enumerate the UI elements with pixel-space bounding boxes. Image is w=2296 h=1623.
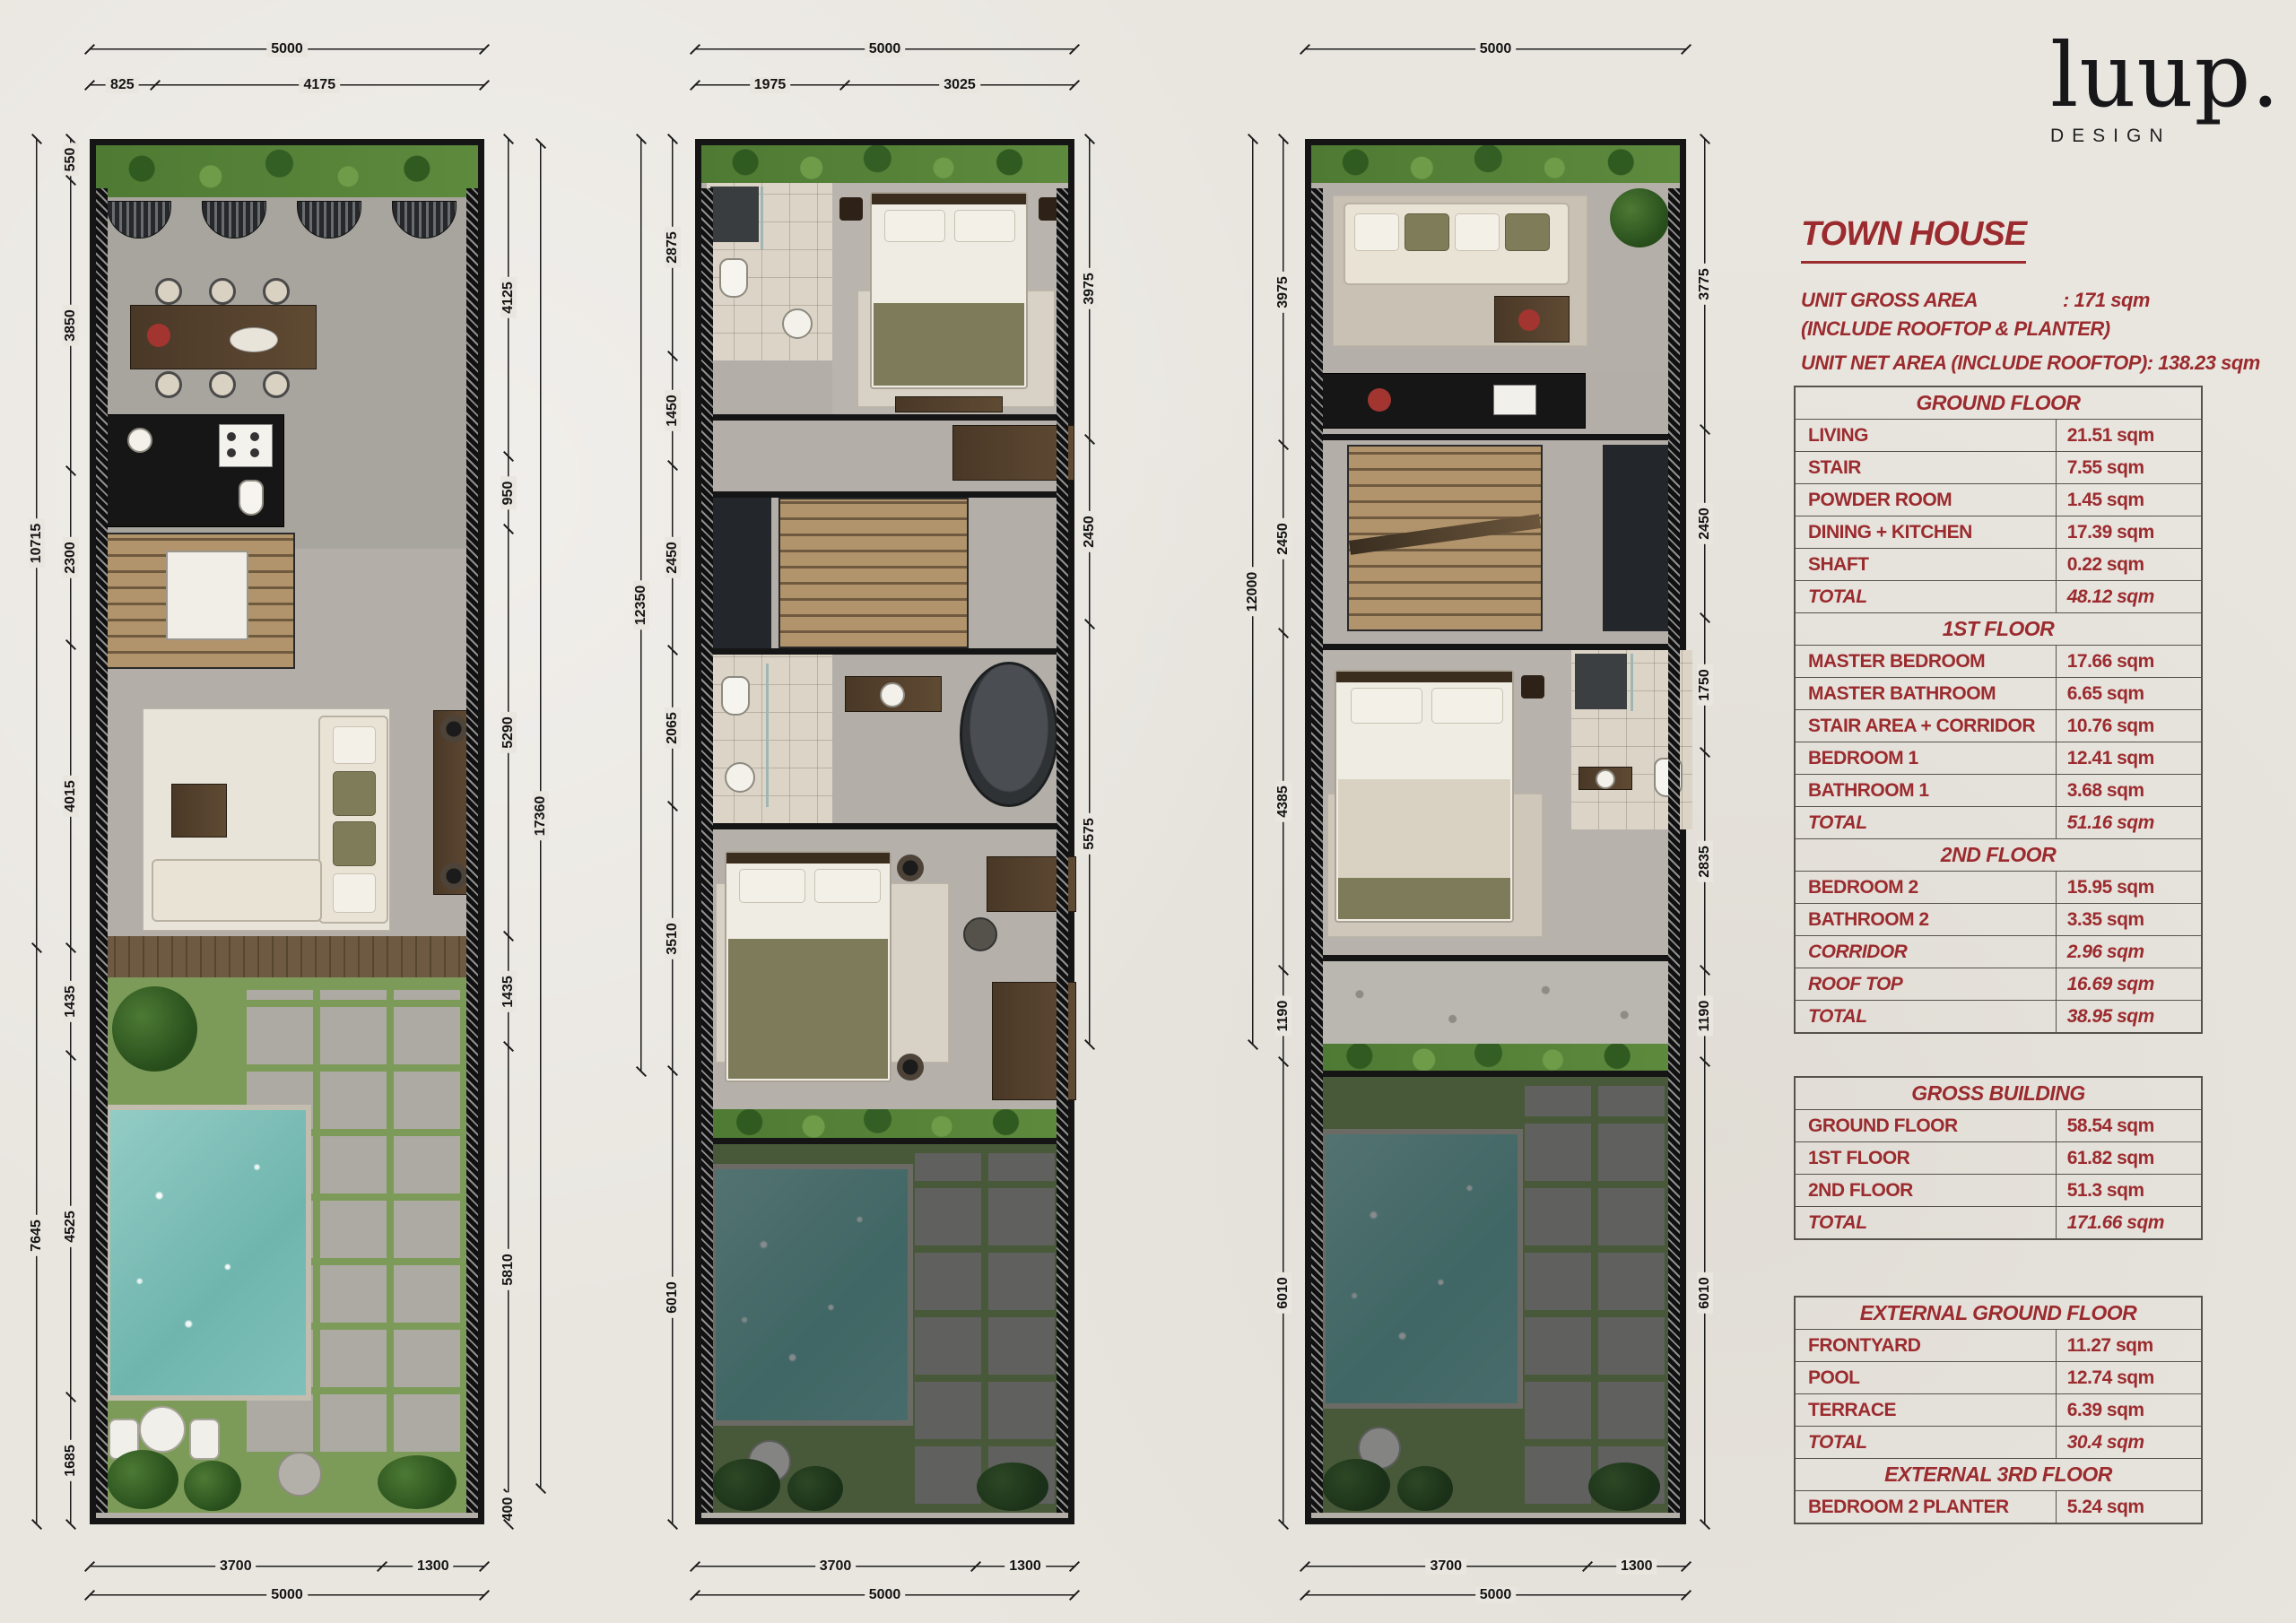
dimension-label: 4525 (63, 1206, 79, 1247)
table-row: ROOF TOP16.69 sqm (1796, 968, 2201, 1000)
dimension-label: 1435 (500, 971, 517, 1012)
bathroom-wc (707, 655, 832, 823)
dimension-segment: 4175 (155, 75, 484, 95)
dimension-segment: 1685 (61, 1397, 81, 1524)
table-row: BATHROOM 13.68 sqm (1796, 774, 2201, 806)
dimension-segment: 12350 (631, 139, 651, 1072)
dimension-segment: 1450 (663, 356, 683, 465)
table-row: CORRIDOR2.96 sqm (1796, 935, 2201, 968)
dimension-segment: 5000 (90, 1585, 484, 1605)
table-section-header: GROUND FLOOR (1796, 387, 2201, 419)
dimension-segment: 5810 (499, 1046, 518, 1493)
dimension-label: 400 (500, 1493, 517, 1526)
table-row: DINING + KITCHEN17.39 sqm (1796, 516, 2201, 548)
table-row: TOTAL171.66 sqm (1796, 1206, 2201, 1238)
dimension-label: 5000 (266, 1587, 308, 1603)
dimension-segment: 2450 (1080, 439, 1100, 624)
dimension-label: 3975 (1275, 272, 1291, 313)
dimension-label: 2875 (665, 227, 681, 268)
dining-chair (263, 371, 290, 398)
dimension-segment: 5000 (695, 39, 1074, 59)
interior-wall (701, 414, 1068, 421)
dimension-segment: 1190 (1274, 970, 1293, 1062)
table-row: POWDER ROOM1.45 sqm (1796, 483, 2201, 516)
interior-wall (701, 491, 1068, 498)
dim-top-overall: 5000 (90, 39, 484, 59)
kitchen-counter (103, 414, 284, 527)
desk-chair (963, 917, 997, 951)
dimension-segment: 2450 (1274, 445, 1293, 633)
dimension-label: 2065 (665, 707, 681, 749)
coffee-table (1494, 296, 1570, 343)
table-section-header: EXTERNAL 3RD FLOOR (1796, 1458, 2201, 1490)
dimension-label: 6010 (1275, 1272, 1291, 1314)
dining-chair (155, 371, 182, 398)
dim-left-outer: 12350 (631, 139, 651, 1072)
balcony-planter (707, 1109, 1063, 1138)
dimension-label: 2450 (1082, 511, 1098, 552)
speaker (440, 716, 467, 742)
dimension-label: 3850 (63, 305, 79, 346)
dimension-segment: 6010 (1695, 1062, 1715, 1524)
dim-top-segments: 19753025 (695, 75, 1074, 95)
dimension-label: 6010 (1697, 1272, 1713, 1314)
dim-top-overall: 5000 (1305, 39, 1686, 59)
dimension-segment: 4125 (499, 139, 518, 456)
interior-wall (701, 823, 1068, 829)
dimension-segment: 2300 (61, 471, 81, 645)
dimension-segment: 2065 (663, 650, 683, 806)
dimension-segment: 3700 (90, 1557, 382, 1576)
dimension-label: 10715 (29, 519, 45, 568)
table-row: BEDROOM 2 PLANTER5.24 sqm (1796, 1490, 2201, 1523)
interior-wall (1311, 434, 1680, 440)
dimension-label: 5290 (500, 712, 517, 753)
dim-right-inner: 397524505575 (1080, 139, 1100, 1045)
planter-strip (1311, 145, 1680, 183)
dimension-label: 1190 (1697, 996, 1713, 1037)
dim-left-inner: 550385023004015143545251685 (61, 139, 81, 1524)
dimension-segment: 550 (61, 139, 81, 180)
dimension-label: 12350 (633, 581, 649, 630)
swimming-pool (110, 1110, 306, 1395)
dimension-label: 17360 (533, 792, 549, 841)
dimension-segment: 2450 (663, 465, 683, 650)
shaft (1603, 445, 1674, 631)
dim-right-outer: 17360 (531, 143, 551, 1488)
unit-net-area-line: UNIT NET AREA (INCLUDE ROOFTOP): 138.23 … (1801, 352, 2260, 375)
dimension-label: 3700 (215, 1558, 257, 1575)
dimension-segment: 7645 (27, 948, 47, 1524)
dimension-segment: 1435 (499, 936, 518, 1046)
table-row: STAIR AREA + CORRIDOR10.76 sqm (1796, 709, 2201, 742)
dimension-segment: 3510 (663, 806, 683, 1071)
interior-wall (1311, 1071, 1680, 1077)
dimension-segment: 6010 (663, 1071, 683, 1524)
staircase (778, 498, 969, 648)
dimension-label: 2450 (665, 537, 681, 578)
garden-below-view (1317, 1077, 1674, 1513)
table-row: FRONTYARD11.27 sqm (1796, 1329, 2201, 1361)
interior-wall (701, 648, 1068, 655)
staircase (1347, 445, 1543, 631)
interior-wall (1311, 955, 1680, 961)
planter-strip (701, 145, 1068, 183)
dimension-segment: 6010 (1274, 1062, 1293, 1524)
living-sofa (318, 716, 388, 924)
dimension-label: 2835 (1697, 841, 1713, 882)
dim-left-outer: 107157645 (27, 139, 47, 1524)
dim-left-inner: 39752450438511906010 (1274, 139, 1293, 1524)
townhouse-plan-sheet: 5000 8254175 107157645 55038502300401514… (0, 0, 2296, 1623)
table-row: 1ST FLOOR61.82 sqm (1796, 1141, 2201, 1174)
dim-left-inner: 287514502450206535106010 (663, 139, 683, 1524)
table-row: LIVING21.51 sqm (1796, 419, 2201, 451)
table-section-header: 1ST FLOOR (1796, 612, 2201, 645)
dimension-label: 4385 (1275, 781, 1291, 822)
dimension-segment: 1300 (1587, 1557, 1687, 1576)
table-section-header: EXTERNAL GROUND FLOOR (1796, 1298, 2201, 1329)
dimension-segment: 2875 (663, 139, 683, 356)
dimension-segment: 10715 (27, 139, 47, 948)
dimension-label: 1450 (665, 390, 681, 431)
lower-floor-shade (1317, 1077, 1674, 1513)
dimension-segment: 3975 (1274, 139, 1293, 445)
stair-landing (166, 551, 248, 640)
dining-chair (209, 278, 236, 305)
gross-building-table: GROSS BUILDINGGROUND FLOOR58.54 sqm1ST F… (1794, 1076, 2203, 1240)
unit-gross-area-label: UNIT GROSS AREA (1801, 289, 1978, 312)
indoor-plant (1610, 188, 1669, 247)
dimension-label: 1975 (750, 77, 791, 93)
external-area-table: EXTERNAL GROUND FLOORFRONTYARD11.27 sqmP… (1794, 1296, 2203, 1524)
table-row: TOTAL30.4 sqm (1796, 1426, 2201, 1458)
logo-subtitle: DESIGN (2050, 126, 2280, 147)
floor-area-table: GROUND FLOORLIVING21.51 sqmSTAIR7.55 sqm… (1794, 386, 2203, 1034)
bedroom-2 (1317, 650, 1674, 955)
wall-hatch (96, 188, 108, 1513)
table-row: TOTAL51.16 sqm (1796, 806, 2201, 838)
wall-hatch (1668, 188, 1680, 1513)
dimension-segment: 4385 (1274, 633, 1293, 970)
pantry-counter (1317, 373, 1586, 429)
lower-floor-shade (707, 1144, 1063, 1513)
dimension-label: 5575 (1082, 814, 1098, 855)
dining-table (130, 305, 317, 369)
logo-wordmark: luup. (2050, 32, 2280, 120)
dimension-segment: 1300 (382, 1557, 484, 1576)
dining-chair (263, 278, 290, 305)
dimension-label: 6010 (665, 1277, 681, 1318)
dimension-label: 3975 (1082, 268, 1098, 309)
table-row: POOL12.74 sqm (1796, 1361, 2201, 1393)
dimension-segment: 3775 (1695, 139, 1715, 430)
wall-hatch (466, 188, 478, 1513)
dim-right-inner: 4125950529014355810400 (499, 139, 518, 1524)
garden-shrub (107, 1450, 178, 1509)
unit-gross-area-value: : 171 sqm (2063, 289, 2150, 312)
dimension-segment: 400 (499, 1494, 518, 1524)
dimension-label: 4015 (63, 776, 79, 817)
wall-hatch (1057, 188, 1068, 1513)
dimension-segment: 3025 (845, 75, 1074, 95)
dim-bottom-segments: 37001300 (1305, 1557, 1686, 1576)
dimension-label: 2450 (1697, 503, 1713, 544)
dimension-segment: 1190 (1695, 970, 1715, 1062)
dimension-segment: 12000 (1243, 139, 1263, 1045)
outdoor-chair (189, 1419, 220, 1460)
dimension-label: 3510 (665, 918, 681, 959)
dim-top-segments: 8254175 (90, 75, 484, 95)
stone-basin (277, 1452, 322, 1497)
powder-room-toilet (239, 480, 264, 516)
bath-vanity (845, 676, 942, 712)
bed-bench (895, 396, 1003, 412)
dimension-segment: 5000 (695, 1585, 1074, 1605)
dim-bottom-overall: 5000 (90, 1585, 484, 1605)
wall-hatch (701, 188, 713, 1513)
dimension-label: 1300 (413, 1558, 454, 1575)
table-row: TOTAL48.12 sqm (1796, 580, 2201, 612)
interior-wall (701, 1138, 1068, 1144)
dimension-segment: 3975 (1080, 139, 1100, 439)
terrace-deck (101, 936, 473, 977)
dimension-label: 5000 (266, 41, 308, 57)
garden-tree (112, 986, 197, 1072)
ground-floor-plan (90, 139, 484, 1524)
page-title-wrap: TOWN HOUSE (1801, 215, 2026, 264)
garden-shrub (184, 1461, 241, 1511)
garden (101, 977, 473, 1513)
table-row: GROUND FLOOR58.54 sqm (1796, 1109, 2201, 1141)
dimension-segment: 5290 (499, 529, 518, 936)
table-row: MASTER BATHROOM6.65 sqm (1796, 677, 2201, 709)
dimension-segment: 950 (499, 456, 518, 530)
dimension-label: 5000 (865, 41, 906, 57)
dim-bottom-overall: 5000 (1305, 1585, 1686, 1605)
dimension-label: 4125 (500, 277, 517, 318)
dimension-label: 12000 (1245, 568, 1261, 617)
dimension-label: 5000 (1475, 1587, 1517, 1603)
dimension-label: 2450 (1275, 518, 1291, 560)
dimension-label: 825 (106, 77, 139, 93)
table-row: BEDROOM 215.95 sqm (1796, 871, 2201, 903)
dimension-label: 1190 (1275, 996, 1291, 1037)
dimension-segment: 5000 (1305, 1585, 1686, 1605)
dimension-segment: 1750 (1695, 618, 1715, 752)
table-row: TERRACE6.39 sqm (1796, 1393, 2201, 1426)
dim-right-inner: 377524501750283511906010 (1695, 139, 1715, 1524)
table-row: BATHROOM 23.35 sqm (1796, 903, 2201, 935)
dimension-segment: 17360 (531, 143, 551, 1488)
shaft (707, 498, 771, 648)
family-room (1317, 183, 1674, 373)
dimension-segment: 1975 (695, 75, 845, 95)
dimension-label: 1435 (63, 981, 79, 1022)
dimension-label: 1300 (1004, 1558, 1046, 1575)
bathroom-top (707, 183, 832, 360)
interior-wall (1311, 644, 1680, 650)
dim-left-outer: 12000 (1243, 139, 1263, 1045)
dimension-label: 1685 (63, 1440, 79, 1481)
dim-top-overall: 5000 (695, 39, 1074, 59)
speaker (440, 863, 467, 890)
dim-bottom-overall: 5000 (695, 1585, 1074, 1605)
dimension-segment: 1300 (976, 1557, 1074, 1576)
outdoor-table (139, 1406, 186, 1453)
table-row: MASTER BEDROOM17.66 sqm (1796, 645, 2201, 677)
table-row: SHAFT0.22 sqm (1796, 548, 2201, 580)
dimension-label: 7645 (29, 1216, 45, 1257)
dimension-segment: 4015 (61, 645, 81, 948)
dimension-segment: 3700 (1305, 1557, 1587, 1576)
dimension-segment: 3700 (695, 1557, 976, 1576)
dimension-segment: 4525 (61, 1055, 81, 1397)
first-floor-plan (695, 139, 1074, 1524)
dining-chair (209, 371, 236, 398)
garden-shrub (378, 1455, 457, 1509)
dimension-segment: 2450 (1695, 430, 1715, 618)
page-title: TOWN HOUSE (1801, 215, 2026, 264)
dimension-label: 5810 (500, 1250, 517, 1291)
garden-below-view (707, 1144, 1063, 1513)
bathtub (960, 662, 1058, 807)
dimension-label: 2300 (63, 537, 79, 578)
front-planter (96, 145, 478, 197)
dimension-label: 3700 (815, 1558, 857, 1575)
dimension-label: 5000 (865, 1587, 906, 1603)
dimension-label: 3700 (1425, 1558, 1466, 1575)
dimension-label: 4175 (300, 77, 341, 93)
dimension-label: 1300 (1616, 1558, 1657, 1575)
dining-chair (155, 278, 182, 305)
bedroom-1 (707, 829, 1063, 1109)
dimension-segment: 5000 (90, 39, 484, 59)
dimension-label: 550 (63, 143, 79, 177)
second-floor-plan (1305, 139, 1686, 1524)
rooftop-gravel-terrace (1317, 961, 1674, 1044)
table-row: 2ND FLOOR51.3 sqm (1796, 1174, 2201, 1206)
dimension-segment: 3850 (61, 180, 81, 471)
coffee-table (171, 784, 227, 838)
living-chaise (152, 859, 322, 922)
table-section-header: 2ND FLOOR (1796, 838, 2201, 871)
wall-hatch (1311, 188, 1323, 1513)
dimension-label: 1750 (1697, 664, 1713, 706)
dimension-label: 5000 (1475, 41, 1517, 57)
dimension-label: 3025 (939, 77, 980, 93)
master-bedroom (832, 183, 1068, 414)
unit-gross-area-note: (INCLUDE ROOFTOP & PLANTER) (1801, 317, 2110, 341)
bedroom2-planter (1317, 1044, 1674, 1071)
dimension-label: 3775 (1697, 264, 1713, 305)
table-row: STAIR7.55 sqm (1796, 451, 2201, 483)
dim-bottom-segments: 37001300 (90, 1557, 484, 1576)
dim-bottom-segments: 37001300 (695, 1557, 1074, 1576)
brand-logo: luup. DESIGN (2050, 32, 2280, 147)
dimension-segment: 5575 (1080, 624, 1100, 1045)
dimension-segment: 2835 (1695, 752, 1715, 970)
dimension-segment: 825 (90, 75, 155, 95)
table-section-header: GROSS BUILDING (1796, 1078, 2201, 1109)
dimension-label: 950 (500, 476, 517, 509)
table-row: BEDROOM 112.41 sqm (1796, 742, 2201, 774)
table-row: TOTAL38.95 sqm (1796, 1000, 2201, 1032)
dimension-segment: 1435 (61, 948, 81, 1056)
dimension-segment: 5000 (1305, 39, 1686, 59)
